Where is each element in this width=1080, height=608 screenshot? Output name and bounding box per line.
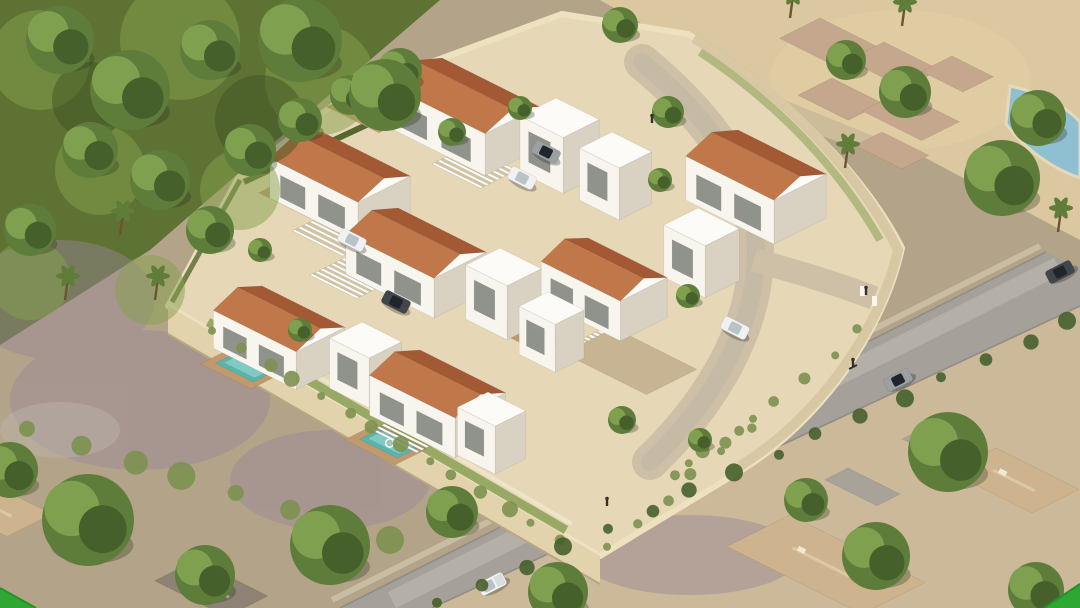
tree-canopy [449, 128, 464, 143]
tree [90, 50, 170, 130]
hill-foliage [115, 255, 185, 325]
tree-canopy [940, 439, 982, 481]
person-body [606, 500, 608, 506]
tree [42, 474, 134, 566]
wall-vines [719, 437, 731, 449]
tree-canopy [122, 77, 164, 119]
wall-vines [446, 469, 457, 480]
swimmer-head [388, 441, 391, 444]
wall-vines [264, 359, 277, 372]
tree-canopy [84, 141, 113, 170]
roadside-bushes [896, 389, 914, 407]
tree-canopy [698, 436, 710, 448]
wall-vines [526, 519, 534, 527]
wall-vines [685, 459, 693, 467]
scrub-clumps [19, 421, 35, 437]
roadside-bushes [432, 598, 442, 608]
wall-vines [502, 501, 518, 517]
wall-vines [670, 470, 680, 480]
roadside-bushes [809, 427, 822, 440]
roadside-bushes [647, 505, 660, 518]
tree-canopy [53, 29, 88, 64]
person-body [865, 289, 867, 295]
verge-planting [747, 423, 756, 432]
verge-planting [684, 468, 696, 480]
tree-canopy [619, 416, 634, 431]
tree-canopy [378, 83, 415, 120]
wall-vines [345, 408, 356, 419]
tree-canopy [658, 176, 670, 188]
person-head [605, 497, 609, 501]
tree-canopy [292, 27, 336, 71]
verge-planting [768, 396, 779, 407]
verge-planting [663, 495, 674, 506]
tree-canopy [616, 19, 635, 38]
tree [349, 59, 421, 131]
tree-canopy [4, 461, 33, 490]
wall-vines [236, 343, 247, 354]
verge-planting [633, 519, 642, 528]
wall-vines [365, 420, 378, 433]
roadside-bushes [476, 579, 489, 592]
tree-canopy [258, 246, 270, 258]
roadside-bushes [603, 524, 613, 534]
tree-canopy [686, 292, 698, 304]
tree-canopy [245, 142, 272, 169]
scrub-clumps [280, 500, 300, 520]
wall-vines [474, 485, 487, 498]
tree-canopy [900, 84, 927, 111]
tree [908, 412, 988, 492]
verge-planting [831, 351, 839, 359]
verge-planting [717, 447, 725, 455]
tree-canopy [298, 326, 310, 338]
person-body [852, 361, 854, 367]
tree-canopy [842, 54, 863, 75]
tree-canopy [322, 532, 364, 574]
wall-vines [426, 457, 434, 465]
scrub-clumps [124, 451, 148, 475]
scrub-clumps [167, 462, 195, 490]
tree-canopy [154, 170, 185, 201]
roadside-bushes [681, 482, 696, 497]
person-body [651, 117, 653, 123]
wall-vines [734, 426, 744, 436]
tree-canopy [296, 113, 319, 136]
tree-canopy [802, 493, 825, 516]
wall-vines [317, 392, 325, 400]
tree-canopy [204, 40, 235, 71]
person-head [650, 114, 654, 118]
roadside-bushes [519, 560, 534, 575]
tree-canopy [665, 107, 682, 124]
scrub-clumps [376, 526, 404, 554]
wall-vines [284, 371, 300, 387]
roadside-bushes [1023, 334, 1038, 349]
roadside-bushes [852, 408, 867, 423]
tree-canopy [869, 545, 904, 580]
verge-planting [603, 543, 611, 551]
tree-canopy [79, 505, 127, 553]
architectural-render [0, 0, 1080, 608]
tree [258, 0, 342, 82]
wall-vines [393, 436, 409, 452]
roadside-bushes [774, 450, 784, 460]
scrub-clumps [228, 485, 244, 501]
verge-planting [852, 324, 861, 333]
tree-canopy [447, 504, 474, 531]
wall-vines [749, 415, 757, 423]
scrub-clumps [71, 436, 91, 456]
person-head [864, 286, 868, 290]
tree-canopy [205, 222, 230, 247]
render-canvas [0, 0, 1080, 608]
roadside-bushes [980, 353, 993, 366]
tree-canopy [199, 565, 230, 596]
gate-post [872, 296, 877, 306]
roadside-bushes [554, 537, 572, 555]
tree [290, 505, 370, 585]
roadside-bushes [1058, 312, 1076, 330]
tree-canopy [994, 166, 1034, 206]
person-head [851, 358, 855, 362]
tree-canopy [25, 222, 52, 249]
tree-canopy [518, 104, 530, 116]
wall-vines [208, 327, 216, 335]
tree-canopy [1032, 109, 1061, 138]
roadside-bushes [725, 463, 743, 481]
roadside-bushes [936, 372, 946, 382]
verge-planting [798, 372, 810, 384]
tree [964, 140, 1040, 216]
